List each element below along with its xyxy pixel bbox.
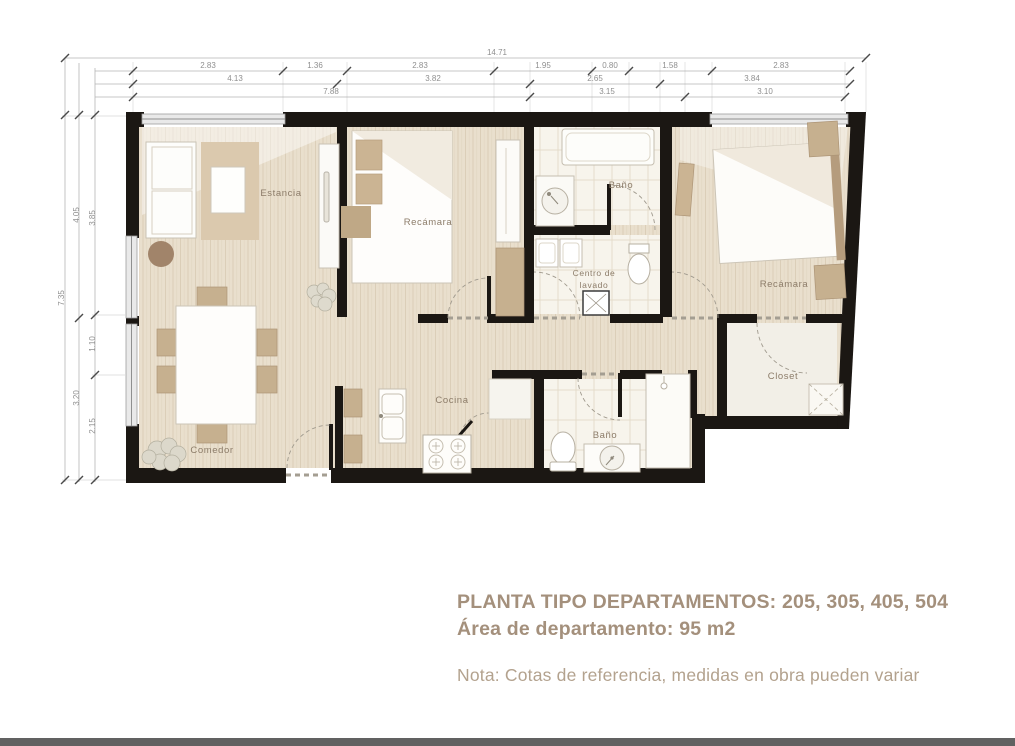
dim-left-inner-1: 1.10 bbox=[88, 336, 97, 352]
sink-bath2 bbox=[584, 444, 640, 472]
dim-top-t1-5: 1.58 bbox=[662, 61, 678, 70]
recamara2-label: Recámara bbox=[760, 279, 809, 290]
wardrobe-1 bbox=[496, 140, 524, 316]
wall-corridor-a bbox=[418, 314, 448, 323]
wall-bath2-left bbox=[534, 370, 544, 483]
dim-left-overall: 7.35 bbox=[57, 290, 66, 306]
closet-label: Closet bbox=[768, 371, 799, 382]
wall-recamara2-bottom-b bbox=[806, 314, 842, 323]
dim-top-t1-3: 1.95 bbox=[535, 61, 551, 70]
nightstand-2a bbox=[807, 121, 839, 157]
coffee-table bbox=[211, 167, 245, 213]
sink-bath1 bbox=[536, 176, 574, 226]
window-left-upper bbox=[126, 236, 137, 318]
plan-area: Área de departamento: 95 m2 bbox=[457, 618, 736, 641]
stove bbox=[423, 435, 471, 473]
tub bbox=[562, 129, 654, 165]
dim-top-t3-0: 7.88 bbox=[323, 87, 339, 96]
floor-plan-page: Estancia Recámara Baño Centro de lavado … bbox=[0, 0, 1015, 746]
cabinet-b bbox=[344, 435, 362, 463]
dim-top-t1-0: 2.83 bbox=[200, 61, 216, 70]
door-leaf-recamara1 bbox=[487, 276, 491, 318]
plan-note: Nota: Cotas de referencia, medidas en ob… bbox=[457, 665, 920, 686]
door-leaf-bath2 bbox=[618, 373, 622, 417]
cabinet-a bbox=[344, 389, 362, 417]
wall-top-mid bbox=[283, 112, 712, 127]
dim-top-t3-2: 3.10 bbox=[757, 87, 773, 96]
shaft-box bbox=[583, 291, 609, 315]
nightstand-1 bbox=[341, 206, 371, 238]
wall-recamara1-bath bbox=[524, 127, 534, 317]
dim-top-t3-1: 3.15 bbox=[599, 87, 615, 96]
dim-left-inner-2: 2.15 bbox=[88, 418, 97, 434]
wall-closet-bottom bbox=[700, 416, 846, 429]
wall-bath-recamara2 bbox=[660, 127, 672, 317]
sofa bbox=[146, 142, 196, 238]
toilet-bath2 bbox=[550, 432, 576, 471]
toilet-laundry bbox=[628, 244, 650, 284]
dim-top-t2-3: 3.84 bbox=[744, 74, 760, 83]
plan-title: PLANTA TIPO DEPARTAMENTOS: 205, 305, 405… bbox=[457, 591, 948, 614]
wall-bottom-mid bbox=[331, 468, 705, 483]
bano2-label: Baño bbox=[593, 430, 618, 441]
counter bbox=[489, 379, 531, 419]
dining-table bbox=[176, 306, 256, 424]
top-dimension-labels: 14.71 2.83 1.36 2.83 1.95 0.80 1.58 2.83… bbox=[200, 48, 789, 96]
centro-lavado-label-1: Centro de bbox=[573, 268, 616, 278]
bed-2 bbox=[713, 142, 846, 267]
dim-top-t2-1: 3.82 bbox=[425, 74, 441, 83]
tv-console bbox=[319, 144, 339, 268]
wall-left-upper bbox=[126, 112, 139, 238]
dim-top-t2-0: 4.13 bbox=[227, 74, 243, 83]
dim-top-t1-1: 1.36 bbox=[307, 61, 323, 70]
dim-top-overall: 14.71 bbox=[487, 48, 508, 57]
dim-top-t1-4: 0.80 bbox=[602, 61, 618, 70]
wall-bottom-left bbox=[126, 468, 286, 483]
window-top-living bbox=[142, 114, 285, 124]
cocina-label: Cocina bbox=[435, 395, 468, 406]
door-leaf-entry bbox=[329, 424, 333, 470]
estancia-label: Estancia bbox=[260, 188, 301, 199]
dim-top-t2-2: 2.65 bbox=[587, 74, 603, 83]
bano1-label: Baño bbox=[609, 180, 634, 191]
wall-corridor-c bbox=[610, 314, 663, 323]
shower bbox=[646, 374, 690, 468]
dim-left-inner-0: 3.85 bbox=[88, 210, 97, 226]
side-table bbox=[148, 241, 174, 267]
dim-top-t1-2: 2.83 bbox=[412, 61, 428, 70]
recamara1-label: Recámara bbox=[404, 217, 453, 228]
comedor-label: Comedor bbox=[190, 445, 233, 456]
nightstand-2b bbox=[814, 264, 846, 300]
wall-kitchen-left bbox=[335, 386, 343, 483]
closet-fixtures bbox=[809, 384, 843, 415]
kitchen-sink bbox=[379, 389, 406, 443]
dim-left-outer-1: 3.20 bbox=[72, 390, 81, 406]
dim-left-outer-0: 4.05 bbox=[72, 207, 81, 223]
centro-lavado-label-2: lavado bbox=[580, 280, 609, 290]
wall-closet-left bbox=[717, 314, 727, 416]
dim-top-t1-6: 2.83 bbox=[773, 61, 789, 70]
window-left-lower bbox=[126, 324, 137, 426]
bottom-bar bbox=[0, 738, 1015, 746]
